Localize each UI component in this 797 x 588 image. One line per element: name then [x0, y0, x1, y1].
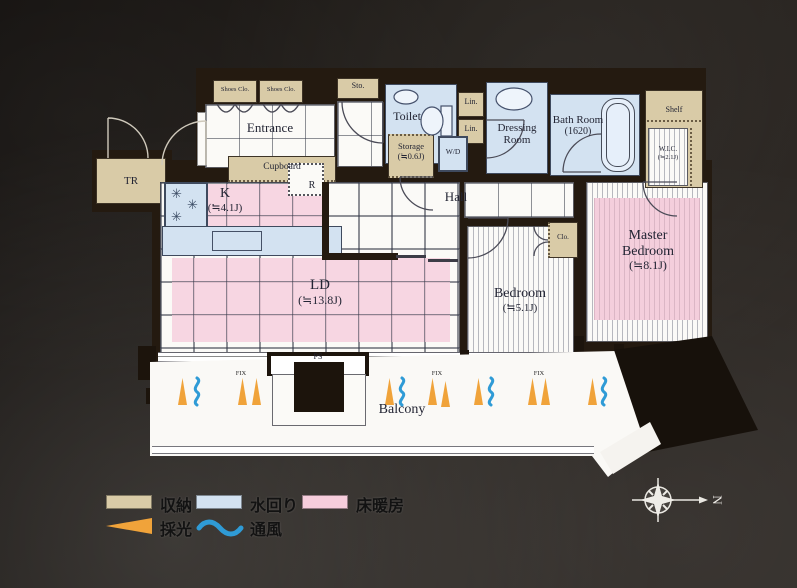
hall-label: Hall: [445, 190, 467, 205]
sliding-door-2: [428, 259, 458, 262]
kitchen-label: K (≒4.1J): [208, 186, 243, 214]
master-name-2: Bedroom: [622, 244, 674, 260]
entry-door-recess: [197, 112, 206, 166]
compass-north-label: N: [710, 495, 725, 505]
closet-label: Clo.: [557, 234, 569, 242]
kitchen-sink: [212, 231, 262, 251]
wall-hall-ld-h: [322, 253, 398, 260]
bedroom-name: Bedroom: [494, 286, 546, 302]
legend-daylight-icon: [106, 518, 152, 534]
ld-label: LD (≒13.8J): [298, 277, 342, 307]
dressing-name-1: Dressing: [497, 122, 536, 134]
dressing-name-2: Room: [497, 134, 536, 146]
shoes-closet-1-label: Shoes Clo.: [221, 86, 249, 93]
balcony-railing: [152, 446, 594, 454]
bathtub-inner: [606, 103, 630, 167]
dressing-label: Dressing Room: [497, 122, 536, 147]
legend-label-ventilation: 通風: [250, 516, 282, 540]
bathtub: [601, 98, 635, 172]
lin-2-label: Lin.: [464, 125, 477, 134]
cupboard-label: Cupboard: [263, 162, 300, 173]
legend-swatch-floor-heating: [302, 495, 348, 509]
master-size: (≒8.1J): [622, 259, 674, 272]
master-bedroom-label: Master Bedroom (≒8.1J): [622, 228, 674, 273]
storage-size: (≒0.6J): [398, 152, 425, 162]
wic-name: W.I.C.: [658, 146, 678, 154]
fix-window-label-1: FIX: [236, 370, 246, 377]
wic-size: (≒2.1J): [658, 154, 678, 161]
compass-rose: N: [612, 470, 742, 534]
washer-dryer-label: W/D: [446, 148, 461, 156]
ld-name: LD: [298, 277, 342, 294]
toilet-label: Toilet: [393, 110, 421, 123]
burner-icon: ✳: [187, 197, 198, 213]
storage-label: Storage (≒0.6J): [398, 142, 425, 161]
legend: 収納 水回り 床暖房 採光 通風: [104, 492, 424, 552]
ps-block: [294, 362, 344, 412]
shoes-closet-2-label: Shoes Clo.: [267, 86, 295, 93]
fix-window-label-3: FIX: [534, 370, 544, 377]
fix-window-label-2: FIX: [432, 370, 442, 377]
bedroom-label: Bedroom (≒5.1J): [494, 286, 546, 314]
wall-hall-kitchen-v: [322, 182, 329, 260]
wic-label: W.I.C. (≒2.1J): [658, 146, 678, 161]
burner-icon: ✳: [171, 186, 182, 202]
refrigerator-label: R: [309, 180, 316, 191]
bath-label: Bath Room (1620): [553, 114, 603, 138]
shelf-hatch: [647, 120, 701, 122]
bath-size: (1620): [553, 126, 603, 137]
legend-ventilation-icon: [196, 518, 244, 538]
stove: ✳ ✳ ✳: [164, 182, 208, 232]
bedroom-size: (≒5.1J): [494, 302, 546, 314]
trunk-room-label: TR: [124, 175, 138, 187]
lin-1-label: Lin.: [464, 98, 477, 107]
kitchen-name: K: [208, 186, 243, 202]
legend-label-water: 水回り: [250, 492, 298, 516]
legend-label-floor-heating: 床暖房: [356, 492, 404, 516]
legend-swatch-storage: [106, 495, 152, 509]
legend-swatch-water: [196, 495, 242, 509]
compass-star: [640, 482, 676, 518]
master-name-1: Master: [622, 228, 674, 244]
bath-name: Bath Room: [553, 114, 603, 126]
corridor-floor: [337, 101, 383, 167]
floor-plan: ✳ ✳ ✳: [0, 0, 797, 588]
legend-label-daylight: 採光: [160, 516, 192, 540]
sliding-door-1: [396, 255, 426, 258]
kitchen-size: (≒4.1J): [208, 202, 243, 214]
entrance-label: Entrance: [247, 121, 293, 136]
ld-size: (≒13.8J): [298, 294, 342, 307]
balcony-label: Balcony: [379, 402, 426, 418]
compass-arrow: [699, 497, 708, 504]
burner-icon: ✳: [171, 209, 182, 225]
shelf-label: Shelf: [666, 106, 683, 115]
sto-label: Sto.: [352, 82, 365, 91]
hall-floor: [464, 182, 574, 218]
legend-label-storage: 収納: [160, 492, 192, 516]
ps-label: PS: [314, 353, 323, 362]
wic-hatch: [690, 128, 692, 186]
